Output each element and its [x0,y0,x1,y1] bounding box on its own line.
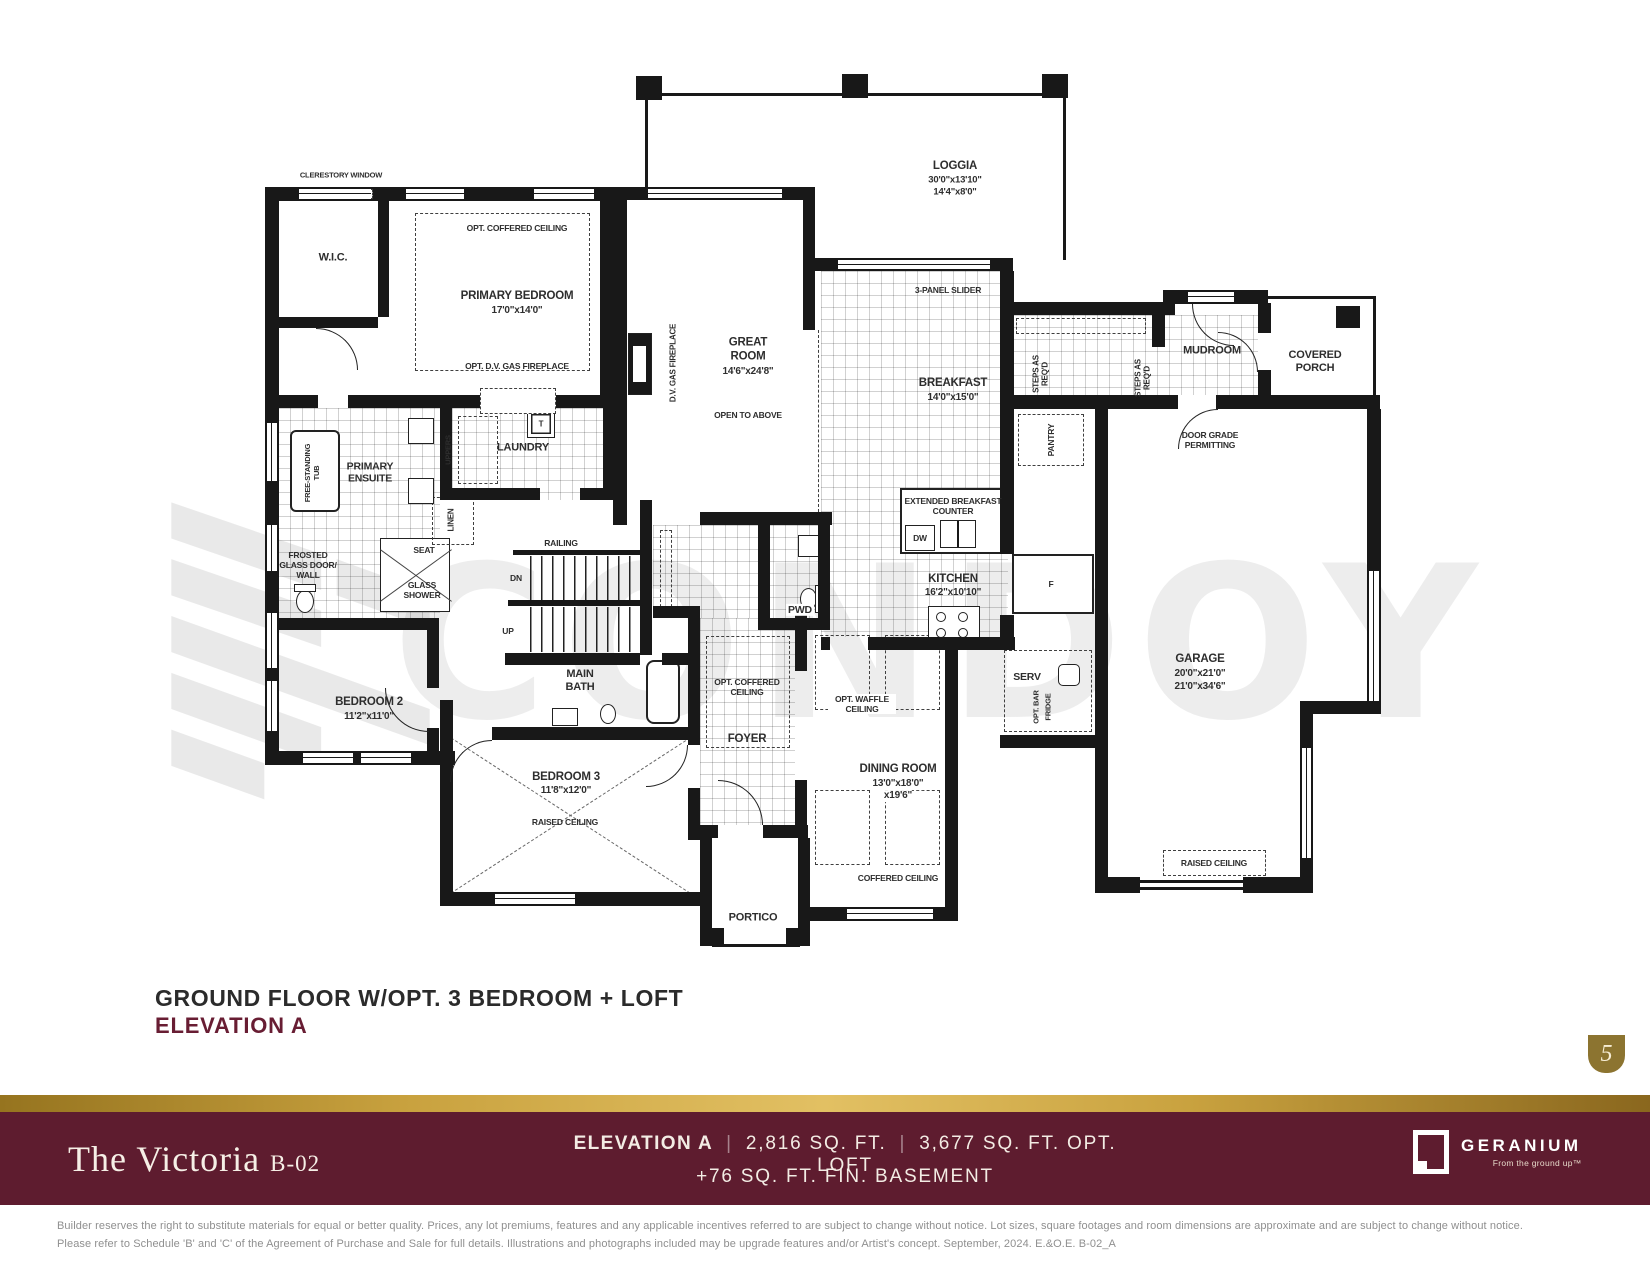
wall [265,395,318,408]
stair-treads-upper [530,556,640,600]
wall [600,200,613,395]
label-garage-dims1: 20'0"x21'0" [1175,668,1226,680]
label-dv-gas-fireplace: D.V. GAS FIREPLACE [668,324,677,402]
wall [1243,877,1313,893]
wall [1000,302,1175,315]
room-label-dining: DINING ROOM [857,763,938,777]
wall [1000,409,1014,554]
bedroom3-window [495,892,575,906]
wall [278,317,378,328]
stove-burner [936,612,946,622]
main-bath-toilet [600,704,616,724]
label-door-grade: DOOR GRADE PERMITTING [1163,430,1257,450]
label-steps-as-reqd-1: STEPS AS REQ'D [1032,352,1051,396]
label-glass-shower: GLASS SHOWER [399,580,445,600]
loggia-edge [1063,93,1066,260]
wall [1258,303,1271,333]
label-primary-dims: 17'0"x14'0" [492,305,543,317]
bar-fridge-icon [1058,664,1080,686]
label-clerestory-window: CLERESTORY WINDOW [300,172,382,181]
geranium-g-icon [1413,1130,1449,1174]
stair-treads-lower [530,607,640,652]
wall [556,395,613,408]
page-subtitle-elevation: ELEVATION A [155,1013,308,1039]
slider-window [838,258,990,271]
room-label-covered-porch: COVERED PORCH [1279,349,1351,375]
wall [1300,701,1381,714]
wall [505,653,640,665]
wall [440,488,540,500]
porch-edge [1252,296,1376,299]
corridor-closet-outline [1016,318,1146,334]
label-kitchen-dims: 16'2"x10'10" [925,587,981,599]
window [406,187,464,201]
label-serv: SERV [1013,671,1041,683]
room-label-main-bath: MAIN BATH [557,668,603,694]
stove-burner [958,612,968,622]
label-fridge-f: F [1049,579,1054,589]
wall [427,728,439,765]
wall [662,653,688,665]
footer-separator: | [887,1133,920,1154]
label-bedroom2-dims: 11'2"x11'0" [344,711,394,723]
wall [1300,714,1313,748]
label-dining-dims1: 13'0"x18'0" [873,778,924,790]
label-garage-dims2: 21'0"x34'6" [1175,681,1226,693]
wall [688,606,700,745]
wall [945,637,958,920]
dining-waffle-cell-3 [815,790,870,865]
room-label-bedroom2: BEDROOM 2 [335,696,403,710]
brand-name: GERANIUM [1461,1136,1582,1156]
wall [603,408,615,500]
label-opt-bar: OPT. BAR [1033,690,1042,723]
kitchen-sink-divider [957,521,959,547]
wall [1095,409,1108,877]
window [265,423,279,481]
room-label-wic: W.I.C. [319,252,348,265]
label-primary-ceiling: OPT. COFFERED CEILING [467,223,568,233]
label-up: UP [502,626,513,636]
door-arc [316,328,358,370]
wall [440,727,450,740]
brand-tagline: From the ground up™ [1461,1158,1582,1168]
ensuite-toilet-tank [294,584,316,592]
wall [933,907,958,921]
wall [700,512,832,525]
wall [700,838,712,938]
disclaimer-line1: Builder reserves the right to substitute… [57,1220,1597,1232]
label-breakfast-dims: 14'0"x15'0" [928,392,979,404]
label-dining-dims2: x19'6" [884,790,912,802]
model-code: B-02 [270,1151,320,1177]
disclaimer-line2: Please refer to Schedule 'B' and 'C' of … [57,1238,1597,1250]
page-title: GROUND FLOOR W/OPT. 3 BEDROOM + LOFT [155,985,683,1012]
label-3-panel-slider: 3-PANEL SLIDER [915,285,981,295]
wall [763,825,808,838]
wall [1300,858,1313,879]
wall [348,395,480,408]
label-steps-as-reqd-2: STEPS AS REQ'D [1134,356,1153,400]
wall [803,187,815,330]
loggia-post [842,74,868,98]
room-label-pwd: PWD [786,604,814,616]
primary-fireplace-outline [480,388,556,414]
wall [492,727,690,740]
label-bedroom3-dims: 11'8"x12'0" [541,785,591,797]
label-linen: LINEN [446,508,455,531]
label-dishwasher: DW [913,533,927,543]
model-name: The Victoria [68,1138,260,1180]
room-label-great-room: GREAT ROOM [712,336,784,363]
ensuite-sink-1 [408,418,434,444]
room-label-mudroom: MUDROOM [1183,345,1241,358]
floor-plan-page: CONDOY [0,0,1650,1275]
wall [265,618,437,630]
label-bar-fridge: FRIDGE [1045,693,1054,720]
porch-edge [1373,296,1376,412]
wall [427,618,439,688]
wall [818,512,830,630]
window [265,613,279,668]
wall [688,825,718,838]
room-label-kitchen: KITCHEN [928,573,978,587]
room-label-breakfast: BREAKFAST [919,377,987,391]
label-uppers: UPPERS [445,435,454,465]
label-dn: DN [510,573,522,583]
stair-landing-bar [508,600,640,606]
wall [1216,395,1380,409]
stair-railing-bar [513,550,640,555]
wall [758,525,770,618]
loggia-post [1042,74,1068,98]
room-label-laundry: LAUNDRY [497,442,549,455]
label-extended-breakfast-counter: EXTENDED BREAKFAST COUNTER [897,496,1009,516]
label-primary-fireplace: OPT. D.V. GAS FIREPLACE [465,361,569,371]
wall [1095,877,1140,893]
garage-window [1367,571,1381,701]
door-arc [646,745,688,787]
hall-closet-track [660,530,672,612]
garage-door-sill [1140,887,1243,890]
label-dining-coffered: COFFERED CEILING [858,873,938,883]
wall [613,187,627,525]
label-open-to-above: OPEN TO ABOVE [714,410,782,420]
label-foyer-ceiling: OPT. COFFERED CEILING [709,677,785,697]
footer-basement: +76 SQ. FT. FIN. BASEMENT [696,1166,994,1187]
brand-text-block: GERANIUM From the ground up™ [1461,1136,1582,1168]
label-freestanding-tub: FREE-STANDING TUB [304,437,322,509]
label-frosted-glass: FROSTED GLASS DOOR/ WALL [279,550,337,580]
label-railing: RAILING [544,538,578,548]
ensuite-sink-2 [408,478,434,504]
room-label-loggia: LOGGIA [933,160,977,174]
footer-sqft: 2,816 SQ. FT. [746,1133,887,1154]
ensuite-toilet [296,590,314,613]
mudroom-window [1188,290,1234,304]
label-pantry: PANTRY [1046,424,1056,457]
geranium-g-icon-inner [1413,1161,1427,1174]
great-room-fireplace-inset [633,346,646,382]
wall [653,606,698,618]
porch-post [1336,306,1360,328]
window [534,187,594,201]
footer-specs-row2: +76 SQ. FT. FIN. BASEMENT [555,1166,1135,1188]
room-label-bedroom3: BEDROOM 3 [532,771,600,785]
room-label-garage: GARAGE [1175,653,1224,667]
wall [378,200,389,317]
breakfast-great-room-boundary [818,330,820,512]
label-bedroom3-raised-ceiling: RAISED CEILING [532,817,598,827]
window [299,187,371,201]
dining-window [847,907,933,921]
wall [868,637,1015,650]
main-bath-sink [552,708,578,726]
window [265,525,279,571]
label-loggia-dims2: 14'4"x8'0" [933,186,976,197]
model-name-block: The Victoria B-02 [68,1138,320,1180]
wall [1000,735,1108,748]
loggia-post [636,76,662,100]
label-loggia-dims1: 30'0"x13'10" [928,174,981,185]
page-number-badge: 5 [1588,1035,1625,1073]
footer-gold-bar [0,1095,1650,1112]
garage-door-sill [1140,880,1243,883]
footer-elevation: ELEVATION A [574,1133,714,1154]
footer-separator: | [713,1133,746,1154]
loggia-edge [645,93,648,189]
room-label-portico: PORTICO [729,912,778,925]
laundry-washer-dryer-outline [458,416,498,484]
window [303,751,353,765]
wall [798,838,810,938]
label-waffle-ceiling: OPT. WAFFLE CEILING [828,694,896,714]
wall [805,907,847,921]
wall [640,512,652,525]
wall [1000,271,1014,395]
label-seat: SEAT [413,545,434,555]
wall [1152,302,1165,347]
brand-logo-block: GERANIUM From the ground up™ [1413,1130,1582,1174]
wall [1367,409,1381,571]
window [361,751,411,765]
label-great-dims: 14'6"x24'8" [723,366,774,378]
room-label-primary-ensuite: PRIMARY ENSUITE [337,461,403,486]
great-room-window [648,187,782,200]
portico-step-edge [712,944,800,947]
room-label-foyer: FOYER [728,733,767,747]
wall [821,637,830,650]
label-garage-raised-ceiling: RAISED CEILING [1181,858,1247,868]
garage-window [1300,748,1313,858]
window [265,681,279,731]
room-label-primary-bedroom: PRIMARY BEDROOM [461,290,574,304]
main-bath-tub [646,660,680,724]
label-laundry-tub: T [539,419,544,428]
